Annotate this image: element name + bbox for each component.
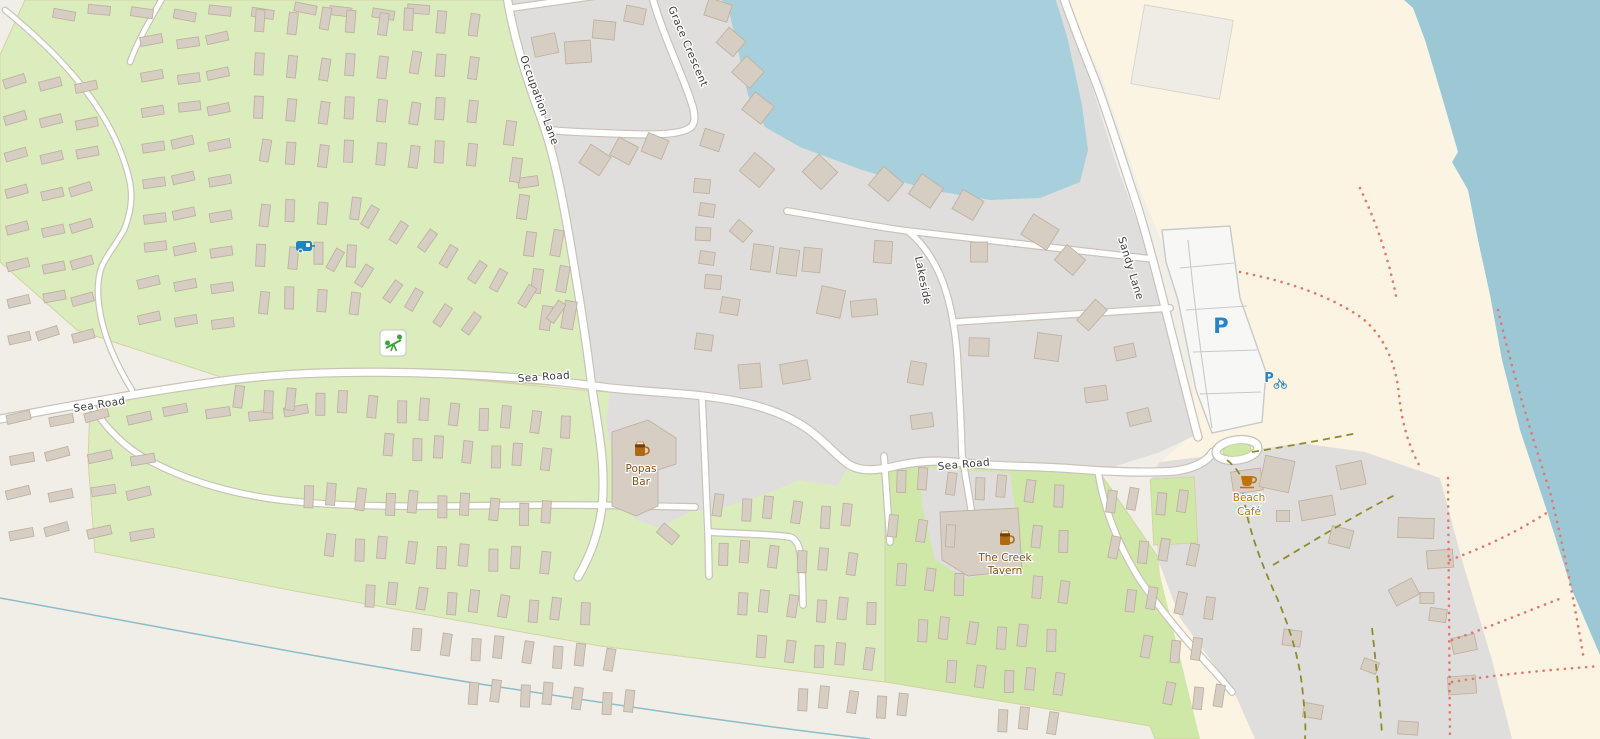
building xyxy=(413,439,422,461)
poi-label-popas-bar-2: Bar xyxy=(632,476,651,488)
building xyxy=(1047,629,1057,651)
building xyxy=(602,692,612,714)
building xyxy=(208,5,231,16)
building xyxy=(88,4,111,15)
poi-label-beach-cafe-2: Café xyxy=(1237,506,1261,518)
building xyxy=(517,176,538,189)
building xyxy=(945,525,955,548)
building xyxy=(458,544,469,567)
building xyxy=(998,710,1008,732)
building xyxy=(255,9,265,32)
building xyxy=(624,5,647,25)
building xyxy=(969,338,990,357)
building xyxy=(704,274,721,289)
building xyxy=(346,245,356,267)
building xyxy=(254,96,264,118)
building xyxy=(520,685,530,707)
building xyxy=(531,33,559,58)
building xyxy=(317,289,328,312)
building xyxy=(519,503,528,525)
building xyxy=(624,690,635,713)
building xyxy=(814,645,824,667)
building xyxy=(975,478,985,500)
building xyxy=(1025,667,1036,690)
building xyxy=(897,470,907,492)
building xyxy=(580,603,590,625)
building xyxy=(419,398,430,421)
building xyxy=(1032,576,1043,599)
building xyxy=(528,600,539,623)
building xyxy=(971,242,988,262)
building xyxy=(750,244,773,273)
building xyxy=(489,498,500,521)
building xyxy=(466,143,477,166)
building xyxy=(397,401,406,423)
building xyxy=(561,416,571,438)
building xyxy=(383,433,394,456)
building xyxy=(954,573,964,595)
building xyxy=(367,395,378,418)
building xyxy=(345,10,356,33)
building xyxy=(178,101,201,112)
building xyxy=(887,515,898,538)
building xyxy=(411,628,422,651)
building xyxy=(720,297,741,316)
building xyxy=(818,686,829,709)
building xyxy=(286,99,297,122)
building xyxy=(797,551,807,573)
building xyxy=(918,620,928,642)
building xyxy=(996,475,1007,498)
building xyxy=(493,636,504,659)
building xyxy=(512,443,523,466)
building xyxy=(468,590,480,613)
building xyxy=(574,643,586,666)
building xyxy=(258,291,269,314)
building xyxy=(479,408,489,430)
building xyxy=(592,20,616,40)
poi-label-creek-tavern-2: Tavern xyxy=(987,565,1023,577)
building xyxy=(1336,461,1366,490)
building xyxy=(264,391,274,413)
building xyxy=(541,501,552,524)
building xyxy=(876,696,886,719)
building xyxy=(738,363,762,389)
building xyxy=(404,8,414,30)
turning-circle xyxy=(1215,437,1259,463)
building xyxy=(285,388,296,411)
building xyxy=(758,590,769,613)
building xyxy=(1131,5,1234,99)
building xyxy=(1420,593,1434,604)
building xyxy=(802,247,822,273)
building xyxy=(738,593,748,615)
building xyxy=(355,539,365,561)
building xyxy=(1282,629,1302,647)
building xyxy=(376,99,387,122)
building xyxy=(1170,640,1181,663)
building xyxy=(386,493,396,515)
building xyxy=(377,56,389,79)
building xyxy=(816,286,845,318)
building xyxy=(376,143,387,166)
building xyxy=(850,299,878,318)
building xyxy=(1156,492,1167,515)
building xyxy=(1031,525,1042,548)
svg-text:P: P xyxy=(1213,314,1228,338)
building xyxy=(776,248,799,277)
building xyxy=(285,142,296,165)
building xyxy=(756,635,767,658)
building xyxy=(739,540,750,563)
building xyxy=(501,406,512,429)
poi-label-creek-tavern-1: The Creek xyxy=(977,552,1032,564)
building xyxy=(1398,721,1419,735)
building xyxy=(693,178,710,193)
building xyxy=(1017,624,1028,647)
building xyxy=(867,602,877,624)
building xyxy=(1018,707,1029,730)
building xyxy=(907,361,927,385)
building xyxy=(837,597,848,620)
building xyxy=(435,54,446,77)
building xyxy=(435,97,445,120)
building xyxy=(719,543,729,565)
building xyxy=(938,617,949,640)
building xyxy=(286,55,297,78)
building xyxy=(1429,607,1448,622)
building xyxy=(377,536,388,559)
building xyxy=(1277,511,1290,522)
map-tile: P P Occupation Lane Grace Crescent Sea R… xyxy=(0,0,1600,739)
building xyxy=(873,240,892,263)
building xyxy=(304,486,314,508)
building xyxy=(285,199,295,221)
building xyxy=(910,413,934,430)
svg-text:P: P xyxy=(1264,371,1274,386)
building xyxy=(564,40,591,64)
poi-label-beach-cafe-1: Beach xyxy=(1233,492,1266,504)
building xyxy=(1054,485,1064,507)
building xyxy=(816,600,826,623)
building xyxy=(996,627,1006,650)
building xyxy=(699,251,716,266)
building xyxy=(436,11,447,34)
building xyxy=(798,689,808,711)
map-canvas[interactable]: P P Occupation Lane Grace Crescent Sea R… xyxy=(0,0,1600,739)
building xyxy=(553,646,563,669)
building xyxy=(818,548,829,571)
building xyxy=(699,203,716,218)
building xyxy=(540,551,551,574)
building xyxy=(510,546,520,568)
building xyxy=(317,202,328,225)
building xyxy=(326,483,337,506)
building xyxy=(447,592,457,615)
building xyxy=(1398,517,1435,538)
building xyxy=(337,390,347,412)
building xyxy=(471,638,481,660)
building xyxy=(917,467,928,490)
poi-label-popas-bar-1: Popas xyxy=(626,463,657,475)
building xyxy=(1004,670,1014,692)
building xyxy=(438,496,447,518)
building xyxy=(742,499,752,521)
building xyxy=(287,12,299,35)
building xyxy=(491,446,500,468)
building xyxy=(387,582,398,605)
building xyxy=(896,563,907,586)
building xyxy=(1034,332,1061,361)
parking-icon: P xyxy=(1213,314,1228,338)
building xyxy=(820,506,830,529)
building xyxy=(542,682,553,705)
building xyxy=(1137,541,1148,564)
building xyxy=(344,140,354,162)
building xyxy=(256,244,266,266)
building xyxy=(314,242,323,264)
building xyxy=(284,287,293,309)
building xyxy=(1192,687,1203,710)
building xyxy=(144,241,167,252)
building xyxy=(1259,455,1295,493)
building xyxy=(316,393,325,415)
building xyxy=(434,141,444,163)
building xyxy=(344,97,354,119)
building xyxy=(841,503,852,526)
building xyxy=(695,227,711,241)
building xyxy=(254,53,264,75)
building xyxy=(407,490,418,513)
building xyxy=(489,549,498,571)
building xyxy=(1059,530,1069,552)
building xyxy=(897,693,908,716)
building xyxy=(946,660,957,683)
building xyxy=(462,441,473,464)
building xyxy=(762,496,773,519)
building xyxy=(433,436,443,458)
building xyxy=(345,53,355,76)
building xyxy=(694,333,713,351)
building xyxy=(467,100,479,123)
building xyxy=(437,546,447,568)
building xyxy=(1084,385,1108,403)
building xyxy=(468,682,479,705)
building xyxy=(835,642,846,665)
building xyxy=(779,360,810,385)
building xyxy=(365,585,375,607)
building xyxy=(459,493,469,515)
playground-icon xyxy=(380,330,406,356)
